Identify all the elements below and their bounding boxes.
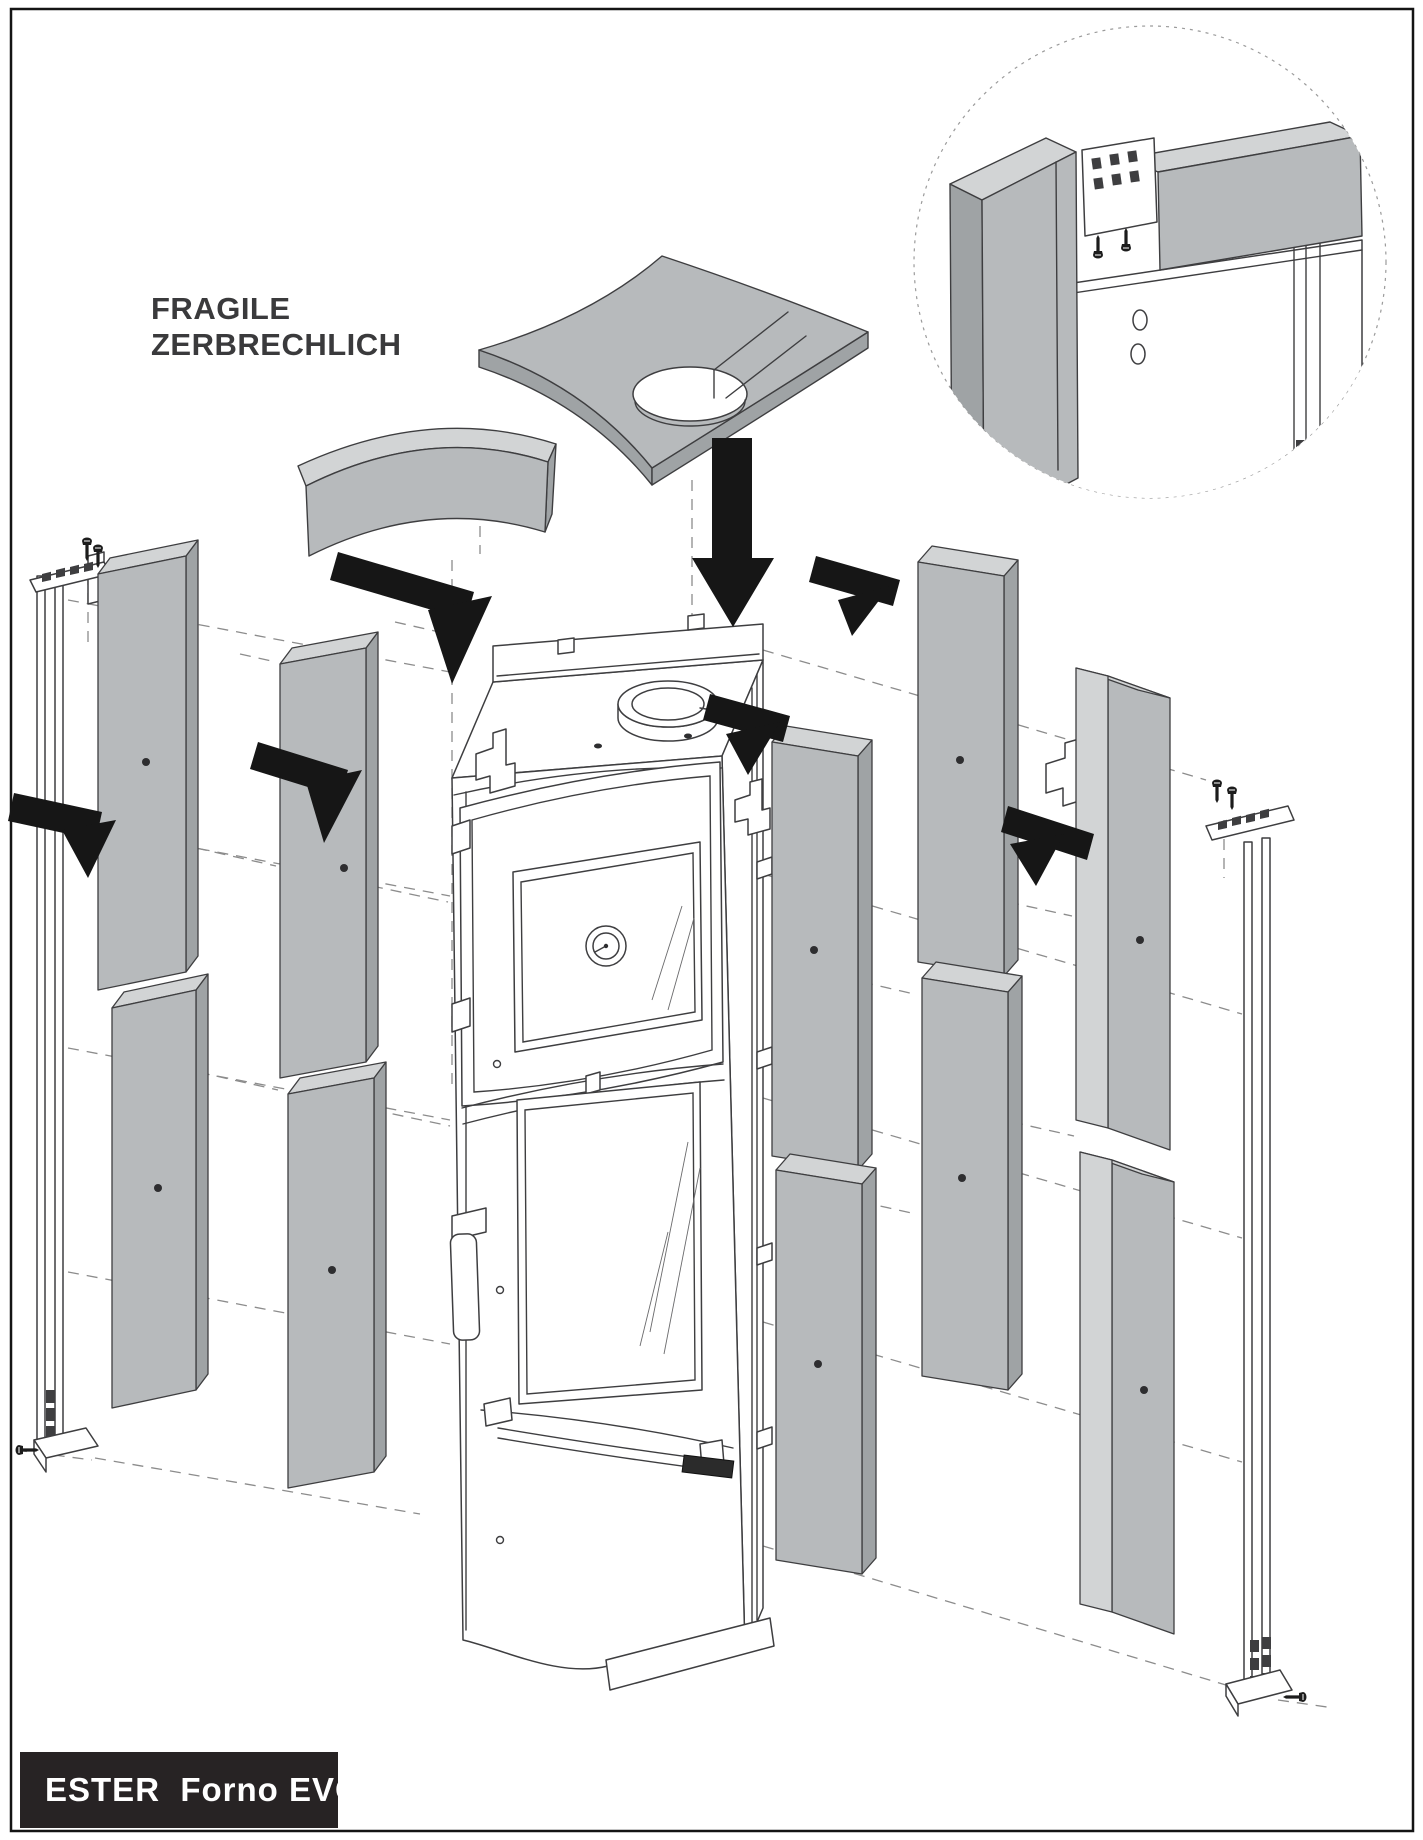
oven-door-hinge: [452, 998, 470, 1032]
detail-hole: [1133, 310, 1147, 330]
fragile-warning-text: FRAGILE ZERBRECHLICH: [151, 291, 402, 363]
detail-bracket-plate: [1082, 138, 1157, 236]
front-top-panel: [298, 428, 556, 556]
rim-clip: [688, 614, 704, 630]
fragile-line-en: FRAGILE: [151, 291, 402, 327]
door-handle: [450, 1234, 480, 1341]
oven-door: [452, 762, 723, 1106]
arrow-down-top: [692, 438, 774, 627]
rim-clip: [558, 638, 574, 654]
detail-left-panel: [950, 138, 1078, 528]
model-name-label: ESTER Forno EVO: [20, 1752, 338, 1828]
panel-right-outer-top: [1076, 668, 1170, 1150]
screw: [1212, 780, 1222, 804]
panel-right-mid-bottom: [922, 962, 1022, 1390]
panel-right-inner-bottom: [776, 1154, 876, 1574]
arrow-right-upper: [809, 556, 900, 636]
flue-hole: [633, 367, 747, 421]
oven-door-hinge: [452, 820, 470, 854]
fragile-line-de: ZERBRECHLICH: [151, 327, 402, 363]
lower-glass-door: [517, 1082, 702, 1404]
right-mounting-rail: [1206, 806, 1294, 1716]
model-name-text: ESTER Forno EVO: [45, 1771, 362, 1809]
assembly-diagram-page: FRAGILE ZERBRECHLICH ESTER Forno EVO: [0, 0, 1423, 1840]
panel-left-inner-top: [280, 632, 378, 1078]
panel-right-outer-bottom: [1080, 1152, 1174, 1634]
panel-left-outer-bottom: [112, 974, 208, 1408]
exploded-view-drawing: [0, 0, 1423, 1840]
panel-right-inner-top: [772, 726, 872, 1170]
screw: [1283, 1692, 1307, 1702]
panel-left-inner-bottom: [288, 1062, 386, 1488]
door-latch: [586, 1072, 600, 1094]
panel-right-mid-top: [918, 546, 1018, 976]
thermometer-gauge: [586, 926, 626, 966]
mounting-detail-circle: [914, 26, 1386, 588]
panel-left-outer-top: [98, 540, 198, 990]
rail-foot: [1226, 1670, 1292, 1704]
lower-door-glass: [517, 1082, 702, 1404]
detail-hole: [1131, 344, 1145, 364]
screw: [1227, 787, 1237, 811]
flue-collar: [618, 681, 718, 741]
